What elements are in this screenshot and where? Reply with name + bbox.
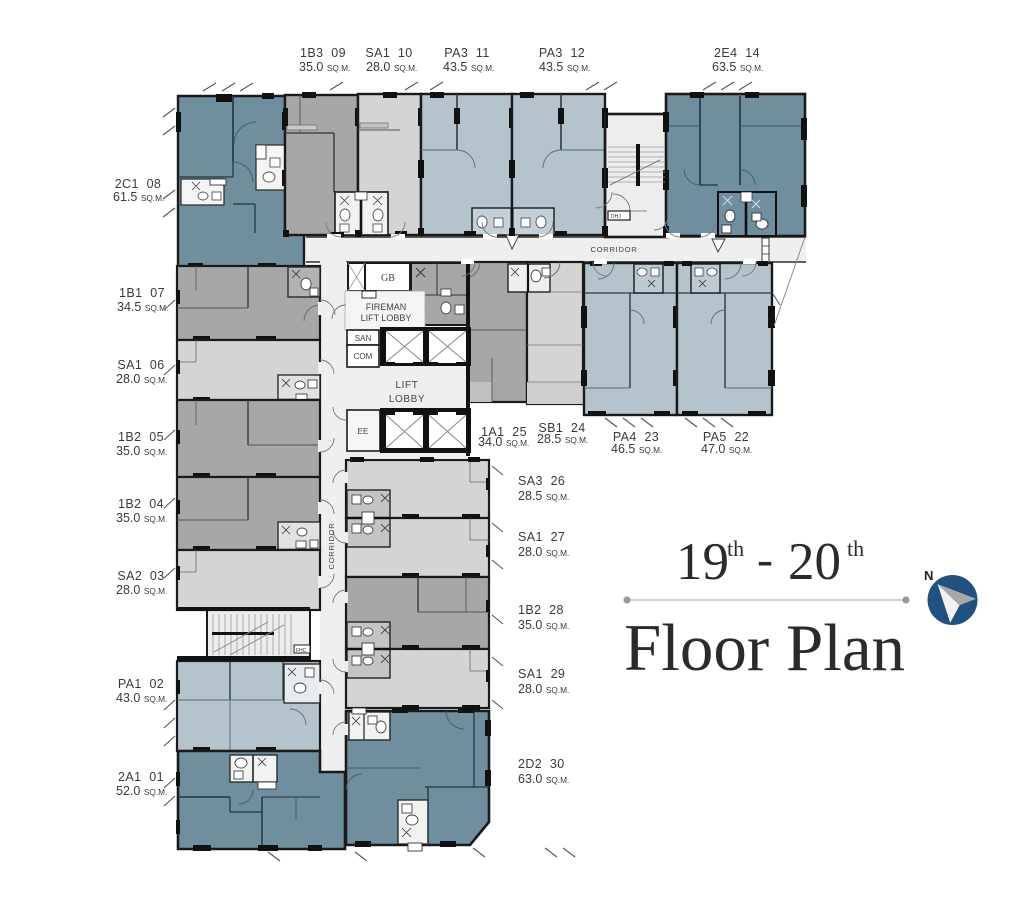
svg-text:34.5 SQ.M.: 34.5 SQ.M. — [117, 300, 168, 314]
svg-text:35.0 SQ.M.: 35.0 SQ.M. — [116, 444, 167, 458]
svg-text:1B3 09: 1B3 09 — [300, 46, 346, 60]
svg-text:FHC: FHC — [296, 648, 307, 654]
svg-text:20: 20 — [788, 533, 841, 591]
svg-text:COM: COM — [354, 352, 373, 361]
svg-text:2C1 08: 2C1 08 — [115, 177, 162, 191]
svg-text:LIFT: LIFT — [396, 380, 419, 391]
svg-text:28.0 SQ.M.: 28.0 SQ.M. — [116, 583, 167, 597]
svg-text:SA1 27: SA1 27 — [518, 530, 565, 544]
svg-text:N: N — [924, 568, 933, 583]
svg-text:PA1 02: PA1 02 — [118, 677, 164, 691]
svg-text:SA3 26: SA3 26 — [518, 474, 565, 488]
svg-text:28.5 SQ.M.: 28.5 SQ.M. — [518, 489, 569, 503]
svg-text:28.0 SQ.M.: 28.0 SQ.M. — [366, 60, 417, 74]
svg-text:LOBBY: LOBBY — [389, 394, 425, 405]
svg-text:LIFT LOBBY: LIFT LOBBY — [361, 313, 412, 323]
svg-text:43.5 SQ.M.: 43.5 SQ.M. — [443, 60, 494, 74]
svg-text:28.0 SQ.M.: 28.0 SQ.M. — [518, 682, 569, 696]
svg-text:CORRIDOR: CORRIDOR — [591, 245, 638, 254]
svg-text:1B2 28: 1B2 28 — [518, 603, 564, 617]
svg-text:1B2 05: 1B2 05 — [118, 430, 164, 444]
svg-text:SA1 29: SA1 29 — [518, 667, 565, 681]
svg-text:61.5 SQ.M.: 61.5 SQ.M. — [113, 190, 164, 204]
svg-text:SAN: SAN — [355, 334, 372, 343]
svg-text:1B2 04: 1B2 04 — [118, 497, 164, 511]
svg-text:GB: GB — [381, 273, 395, 284]
svg-text:63.5 SQ.M.: 63.5 SQ.M. — [712, 60, 763, 74]
svg-text:28.0 SQ.M.: 28.0 SQ.M. — [116, 372, 167, 386]
svg-text:47.0 SQ.M.: 47.0 SQ.M. — [701, 442, 752, 456]
svg-text:2E4 14: 2E4 14 — [714, 46, 760, 60]
svg-text:2D2 30: 2D2 30 — [518, 757, 565, 771]
svg-text:34.0 SQ.M.: 34.0 SQ.M. — [478, 435, 529, 449]
svg-text:19: 19 — [676, 533, 729, 591]
svg-text:35.0 SQ.M.: 35.0 SQ.M. — [299, 60, 350, 74]
svg-text:35.0 SQ.M.: 35.0 SQ.M. — [518, 618, 569, 632]
svg-text:PA3 12: PA3 12 — [539, 46, 585, 60]
svg-text:EE: EE — [358, 427, 369, 436]
svg-text:28.5 SQ.M.: 28.5 SQ.M. — [537, 432, 588, 446]
svg-text:th: th — [727, 536, 744, 561]
svg-text:-: - — [757, 533, 773, 586]
svg-text:28.0 SQ.M.: 28.0 SQ.M. — [518, 545, 569, 559]
svg-text:PA3 11: PA3 11 — [444, 46, 489, 60]
svg-text:Floor Plan: Floor Plan — [624, 611, 905, 685]
svg-text:DHJ: DHJ — [611, 214, 621, 220]
svg-text:43.0 SQ.M.: 43.0 SQ.M. — [116, 691, 167, 705]
svg-text:46.5 SQ.M.: 46.5 SQ.M. — [611, 442, 662, 456]
svg-text:2A1 01: 2A1 01 — [118, 770, 164, 784]
svg-text:SA2 03: SA2 03 — [117, 569, 164, 583]
svg-text:52.0 SQ.M.: 52.0 SQ.M. — [116, 784, 167, 798]
svg-text:CORRIDOR: CORRIDOR — [327, 523, 336, 570]
svg-text:th: th — [847, 536, 864, 561]
svg-text:1B1 07: 1B1 07 — [119, 286, 165, 300]
svg-text:SA1 06: SA1 06 — [117, 358, 164, 372]
svg-text:43.5 SQ.M.: 43.5 SQ.M. — [539, 60, 590, 74]
svg-text:63.0 SQ.M.: 63.0 SQ.M. — [518, 772, 569, 786]
svg-text:FIREMAN: FIREMAN — [366, 302, 407, 312]
svg-text:35.0 SQ.M.: 35.0 SQ.M. — [116, 511, 167, 525]
svg-text:SA1 10: SA1 10 — [365, 46, 412, 60]
